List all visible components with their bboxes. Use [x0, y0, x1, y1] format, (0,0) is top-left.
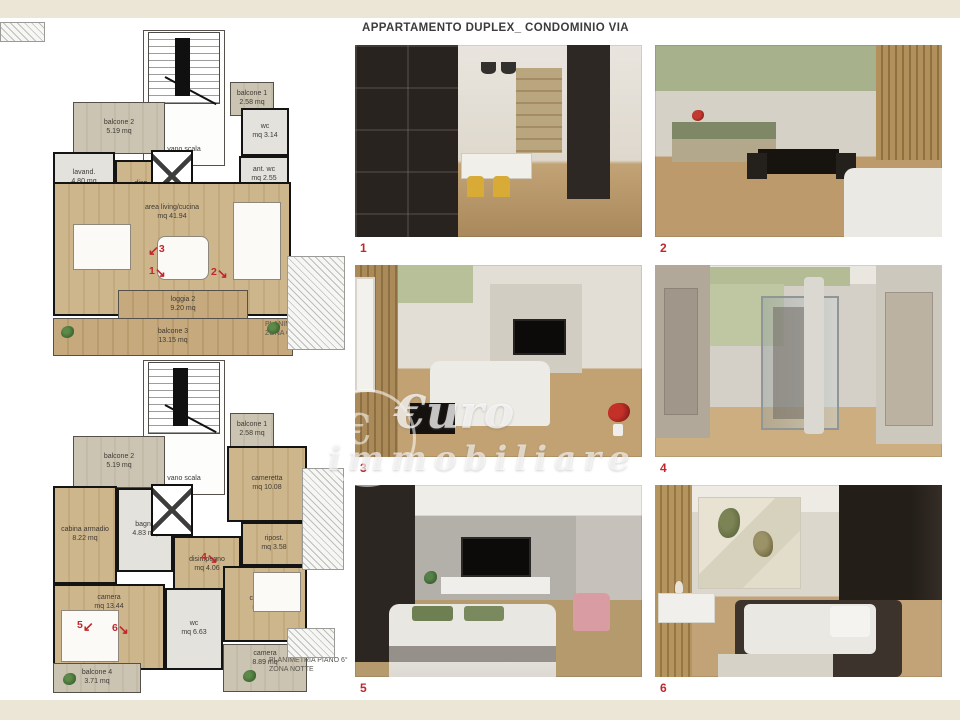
photo-cell-6: 6 — [655, 485, 945, 700]
table-lamp — [675, 581, 683, 593]
sideboard — [441, 577, 550, 594]
photo-2-dining-render — [655, 45, 942, 237]
green-accent-wall — [398, 265, 473, 303]
photo-cell-2: 2 — [655, 45, 945, 260]
photo-number: 2 — [660, 241, 667, 255]
photo-cell-3: 3 — [355, 265, 645, 480]
pink-chair — [573, 593, 610, 631]
tall-cabinet — [567, 45, 610, 199]
sofa-furniture — [233, 202, 281, 280]
page-title: APPARTAMENTO DUPLEX_ CONDOMINIO VIA — [362, 22, 629, 34]
photo-marker-2: 2↘ — [211, 267, 228, 280]
photo-marker-6: 6↘ — [112, 623, 129, 636]
white-sofa — [844, 168, 942, 237]
photo-5-bedroom-render — [355, 485, 642, 677]
bar-stool — [467, 176, 484, 197]
photo-number: 5 — [360, 681, 367, 695]
top-margin-band — [0, 0, 960, 18]
room-balcone-2: balcone 2 5.19 mq — [73, 436, 165, 488]
pillow — [830, 606, 870, 637]
botanical-artwork — [698, 497, 801, 589]
photo-cell-1: 1 — [355, 45, 645, 260]
photo-3-living-render — [355, 265, 642, 457]
photo-number: 1 — [360, 241, 367, 255]
door — [664, 288, 698, 415]
photo-marker-1: 1↘ — [149, 266, 166, 279]
elevator — [151, 484, 193, 536]
dresser — [658, 593, 715, 624]
photo-6-bedroom-render — [655, 485, 942, 677]
adjacent-unit-hatch — [302, 468, 344, 570]
red-flower — [608, 403, 630, 422]
tv-screen — [513, 319, 566, 356]
bed-furniture — [253, 572, 301, 612]
pillar — [804, 277, 824, 434]
door — [885, 292, 934, 426]
flyer-page: APPARTAMENTO DUPLEX_ CONDOMINIO VIA vano… — [0, 0, 960, 720]
room-cabina-armadio: cabina armadio 8.22 mq — [53, 486, 117, 584]
wood-slat-wall — [655, 485, 692, 677]
lift-interior — [773, 307, 807, 418]
green-pillow — [464, 606, 504, 621]
pendant-lamp — [501, 62, 515, 74]
pendant-lamp — [481, 62, 495, 74]
green-pillow — [412, 606, 452, 621]
photo-number: 4 — [660, 461, 667, 475]
flower-vase — [613, 424, 623, 436]
room-balcone-1: balcone 1 2.58 mq — [230, 413, 274, 447]
kitchen-island-furniture — [73, 224, 131, 270]
bottom-margin-band — [0, 700, 960, 720]
plan-caption-lower: PLANIMETRIA PIANO 6° ZONA NOTTE — [269, 656, 348, 675]
tv-screen — [461, 537, 531, 577]
shelving-unit — [516, 68, 562, 152]
dining-chair — [747, 153, 767, 180]
photo-number: 3 — [360, 461, 367, 475]
red-flowers — [692, 110, 704, 121]
dining-table — [758, 149, 838, 174]
room-wc: wc mq 3.14 — [241, 108, 289, 156]
photo-number: 6 — [660, 681, 667, 695]
adjacent-unit-hatch — [287, 628, 335, 658]
rug — [718, 654, 833, 677]
photo-marker-5: 5↙ — [77, 620, 94, 633]
wood-slat-wall — [876, 45, 942, 160]
bar-stool — [493, 176, 510, 197]
adjacent-unit-hatch — [287, 256, 345, 350]
bed-throw — [389, 646, 555, 661]
room-balcone-2: balcone 2 5.19 mq — [73, 102, 165, 154]
photo-cell-4: 4 — [655, 265, 945, 480]
photo-cell-5: 5 — [355, 485, 645, 700]
photo-4-hallway-render — [655, 265, 942, 457]
bed-furniture — [61, 610, 119, 662]
photo-marker-3: ↙3 — [148, 244, 165, 257]
window-frame — [355, 277, 375, 392]
room-ripostiglio: ripost. mq 3.58 — [241, 522, 307, 566]
kitchen-counter — [672, 122, 775, 139]
room-wc: wc mq 6.63 — [165, 588, 223, 670]
dark-wardrobe — [839, 485, 942, 600]
photo-marker-4: 4↘ — [201, 552, 218, 565]
room-balcone-3: balcone 3 13.15 mq — [53, 318, 293, 356]
dark-wardrobe — [355, 45, 458, 237]
coffee-table — [410, 403, 456, 434]
adjacent-unit-hatch — [0, 22, 45, 42]
room-loggia-2: loggia 2 9.20 mq — [118, 290, 248, 320]
photo-1-kitchen-render — [355, 45, 642, 237]
room-cameretta-1: cameretta mq 10.08 — [227, 446, 307, 522]
